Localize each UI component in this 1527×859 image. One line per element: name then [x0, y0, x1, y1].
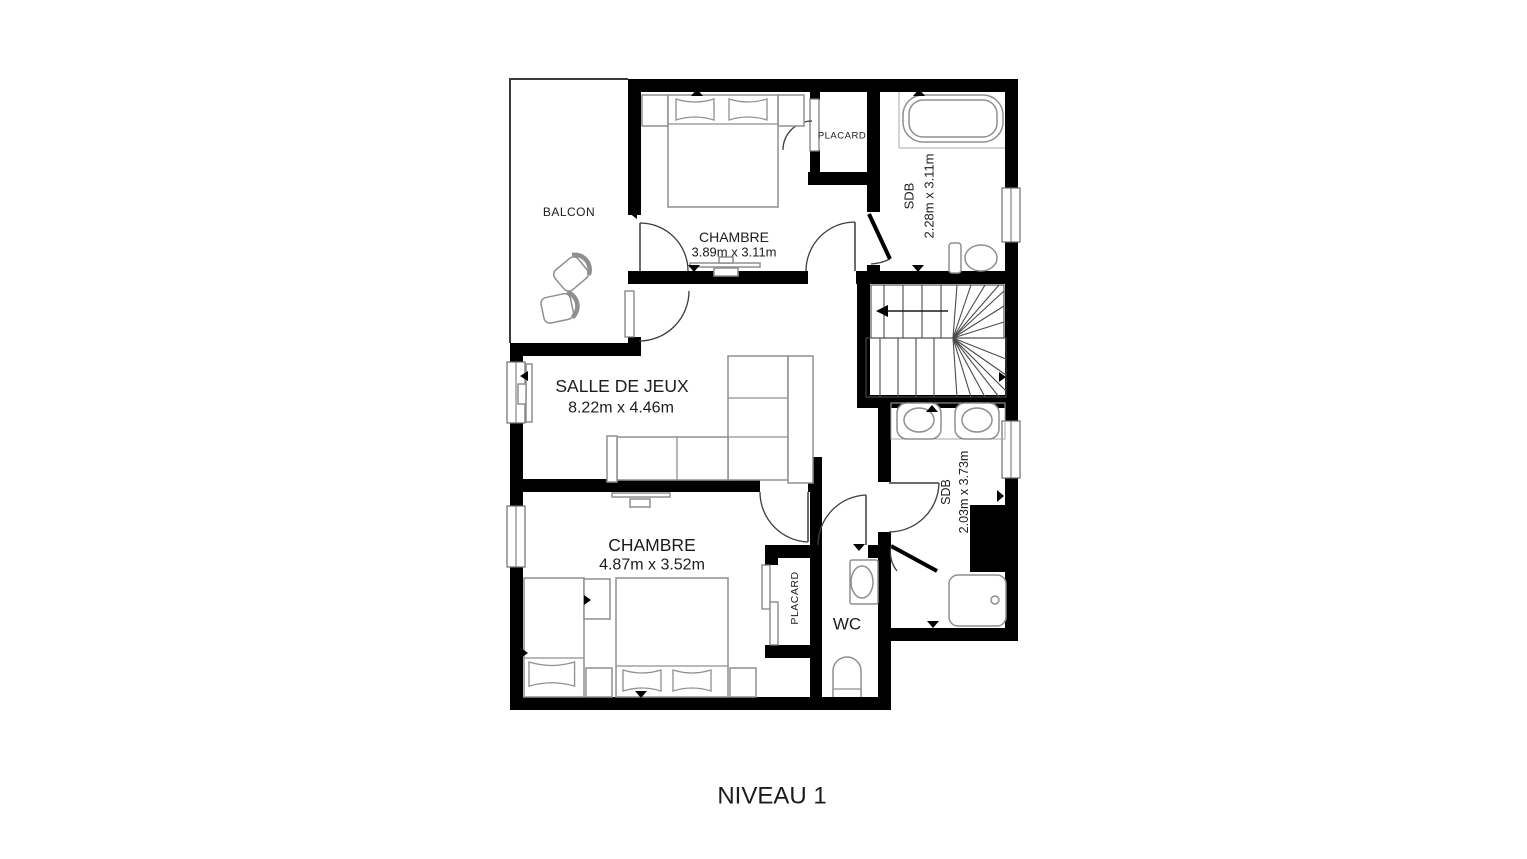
wall-segment [765, 545, 778, 565]
wall-segment [510, 343, 641, 356]
stairs-icon [866, 285, 1006, 397]
window-icon [507, 506, 525, 567]
toilet-icon [850, 560, 878, 604]
door-arc-icon [760, 492, 808, 542]
sink-icon [955, 403, 999, 439]
bed-single-icon [524, 578, 584, 697]
door-arc-icon [625, 291, 689, 341]
room-label-balcon: BALCON [543, 205, 595, 219]
room-dims-sdb-bas: 2.03m x 3.73m [957, 451, 971, 534]
stairs-direction-arrow-icon [876, 305, 948, 317]
room-chambre-bas: CHAMBRE 4.87m x 3.52m [524, 493, 756, 697]
room-dims-chambre-haut: 3.89m x 3.11m [691, 245, 776, 260]
wall-segment [510, 356, 523, 362]
wall-segment [510, 479, 760, 492]
wall-segment [856, 271, 1018, 284]
room-label-salle-de-jeux: SALLE DE JEUX [555, 376, 689, 396]
toilet-icon [949, 243, 997, 273]
room-label-chambre-haut: CHAMBRE [699, 229, 769, 245]
room-label-sdb-bas: SDB [939, 479, 953, 505]
wall-tv-icon [612, 493, 670, 507]
room-dims-sdb-haut: 2.28m x 3.11m [922, 153, 937, 238]
wall-segment [857, 284, 870, 403]
wall-segment [1005, 242, 1018, 421]
wall-segment [628, 92, 641, 215]
room-label-placard-bas: PLACARD [789, 571, 801, 624]
sliding-door-icon [770, 602, 778, 645]
room-balcon: BALCON [510, 79, 628, 343]
direction-marker-icon [853, 544, 865, 551]
shower-icon [949, 575, 1006, 626]
pillow-icon [729, 99, 767, 120]
room-dims-chambre-bas: 4.87m x 3.52m [599, 557, 705, 574]
wall-segment [628, 79, 1018, 92]
pillow-icon [529, 662, 575, 686]
room-salle-de-jeux: SALLE DE JEUX 8.22m x 4.46m [518, 356, 813, 483]
direction-marker-icon [688, 265, 700, 272]
door-arc-icon [889, 483, 939, 532]
bathtub-icon [903, 95, 1003, 142]
direction-marker-icon [999, 372, 1006, 382]
wall-segment [867, 92, 880, 212]
wall-segment [878, 408, 891, 482]
wall-segment [878, 628, 1018, 641]
page-title: NIVEAU 1 [717, 783, 826, 810]
nightstand-icon [730, 668, 756, 697]
window-icon [1002, 188, 1020, 242]
room-label-chambre-bas: CHAMBRE [608, 535, 696, 555]
room-chambre-haut: CHAMBRE 3.89m x 3.11m [642, 95, 804, 276]
direction-marker-icon [927, 621, 939, 628]
door-leaf-icon [890, 546, 937, 571]
room-wc: WC [833, 560, 878, 697]
wall-segment [1005, 92, 1018, 188]
sink-icon [833, 657, 861, 697]
direction-marker-icon [912, 265, 924, 272]
bed-double-icon [616, 578, 728, 697]
room-label-wc: WC [833, 615, 861, 634]
door-leaf-icon [869, 214, 890, 264]
chair-icon [540, 290, 580, 324]
pillow-icon [673, 670, 711, 691]
sliding-door-icon [762, 565, 770, 609]
room-sdb-haut: SDB 2.28m x 3.11m [899, 92, 1005, 273]
door-arc-icon [818, 495, 866, 545]
wall-segment [878, 545, 891, 710]
duct-shaft [970, 505, 1018, 572]
pillow-icon [623, 670, 661, 691]
nightstand-icon [586, 668, 612, 697]
direction-marker-icon [997, 490, 1004, 502]
floor-plan-page: BALCON [0, 0, 1527, 859]
wall-segment [810, 558, 822, 710]
floor-plan-canvas: BALCON [0, 0, 1527, 859]
wall-segment [510, 567, 523, 710]
door-arc-icon [640, 223, 688, 271]
nightstand-icon [642, 95, 668, 126]
wall-segment [765, 645, 822, 658]
door-arc-icon [806, 222, 855, 271]
chair-icon [551, 250, 596, 294]
pillow-icon [676, 99, 714, 120]
bed-double-icon [668, 95, 778, 207]
room-label-sdb-haut: SDB [902, 183, 917, 210]
wall-segment [510, 697, 891, 710]
room-label-placard-haut: PLACARD [818, 131, 866, 142]
wall-segment [510, 423, 523, 506]
nightstand-icon [778, 95, 804, 126]
room-dims-salle-de-jeux: 8.22m x 4.46m [568, 400, 674, 417]
wall-segment [867, 265, 880, 284]
room-placard-bas: PLACARD [762, 565, 801, 645]
